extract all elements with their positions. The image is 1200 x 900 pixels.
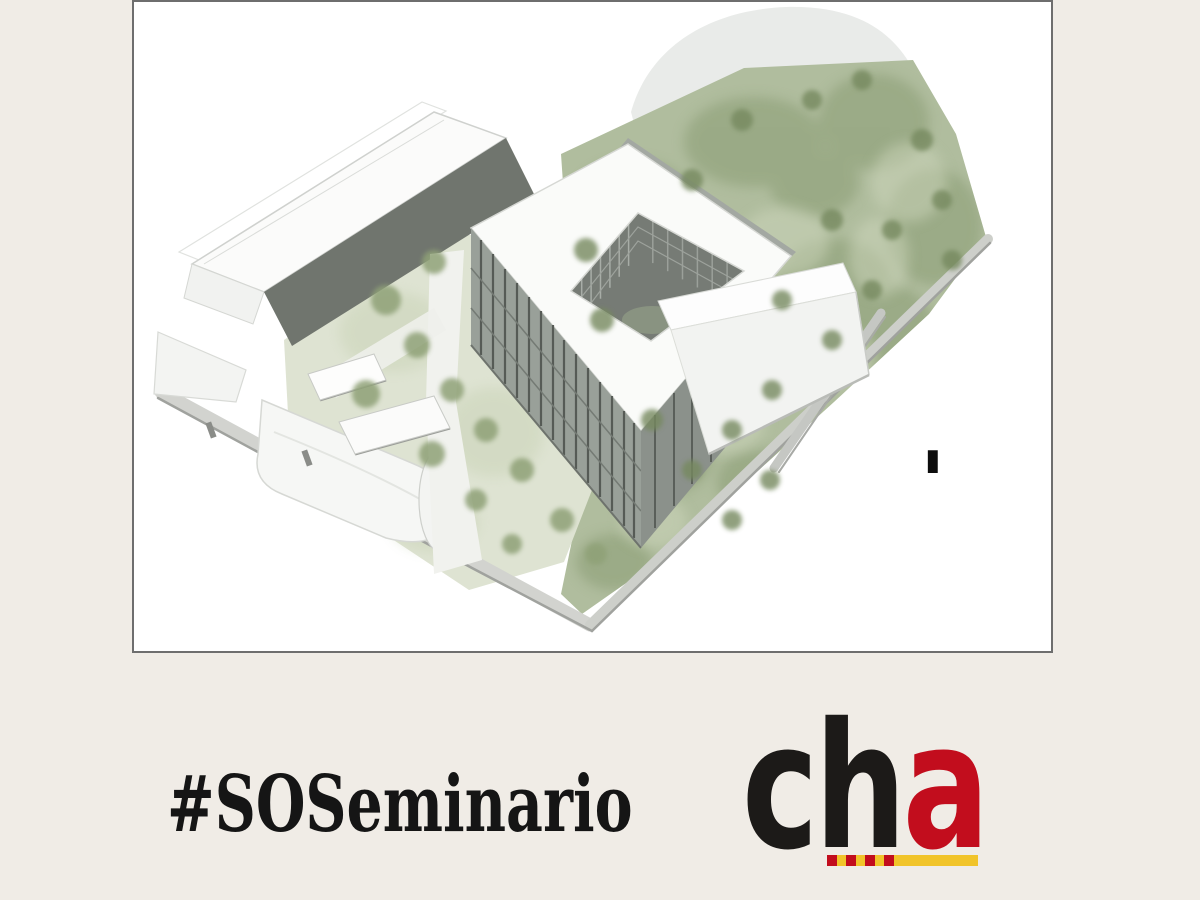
stripe-red-segment (846, 855, 856, 866)
site-rendering-illustration (134, 2, 1051, 651)
stripe-red-segment (865, 855, 875, 866)
stripe-red-segment (827, 855, 837, 866)
scale-mark: I (923, 448, 957, 478)
cha-logo: cha (742, 701, 1062, 881)
rendering-frame (132, 0, 1053, 653)
hashtag-text: #SOSeminario (167, 766, 633, 844)
logo-stripe (827, 855, 978, 866)
page-background: { "page": { "background": "#f0ece6", "fr… (0, 0, 1200, 900)
stripe-red-segment (884, 855, 894, 866)
